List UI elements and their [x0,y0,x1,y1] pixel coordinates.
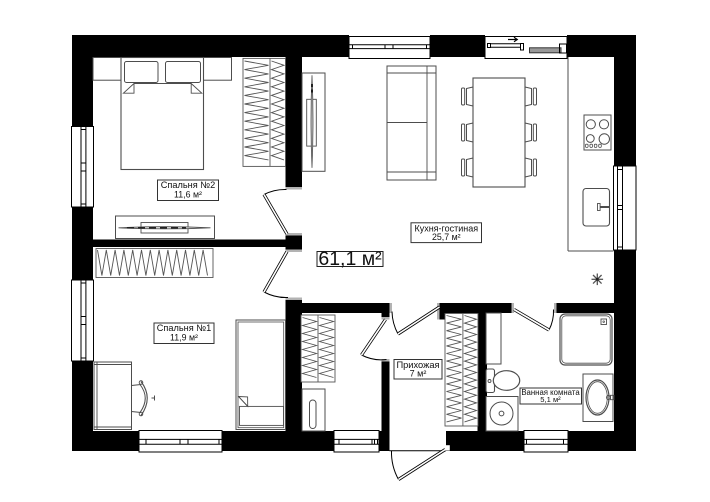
svg-text:11,6 м²: 11,6 м² [174,190,202,200]
svg-text:5,1 м²: 5,1 м² [540,395,561,404]
svg-text:Спальня №2: Спальня №2 [161,180,215,190]
svg-text:11,9 м²: 11,9 м² [170,333,198,343]
svg-text:61,1 м²: 61,1 м² [318,248,382,270]
svg-text:7 м²: 7 м² [410,368,427,378]
svg-text:25,7 м²: 25,7 м² [432,232,461,242]
svg-text:Спальня №1: Спальня №1 [157,323,211,333]
